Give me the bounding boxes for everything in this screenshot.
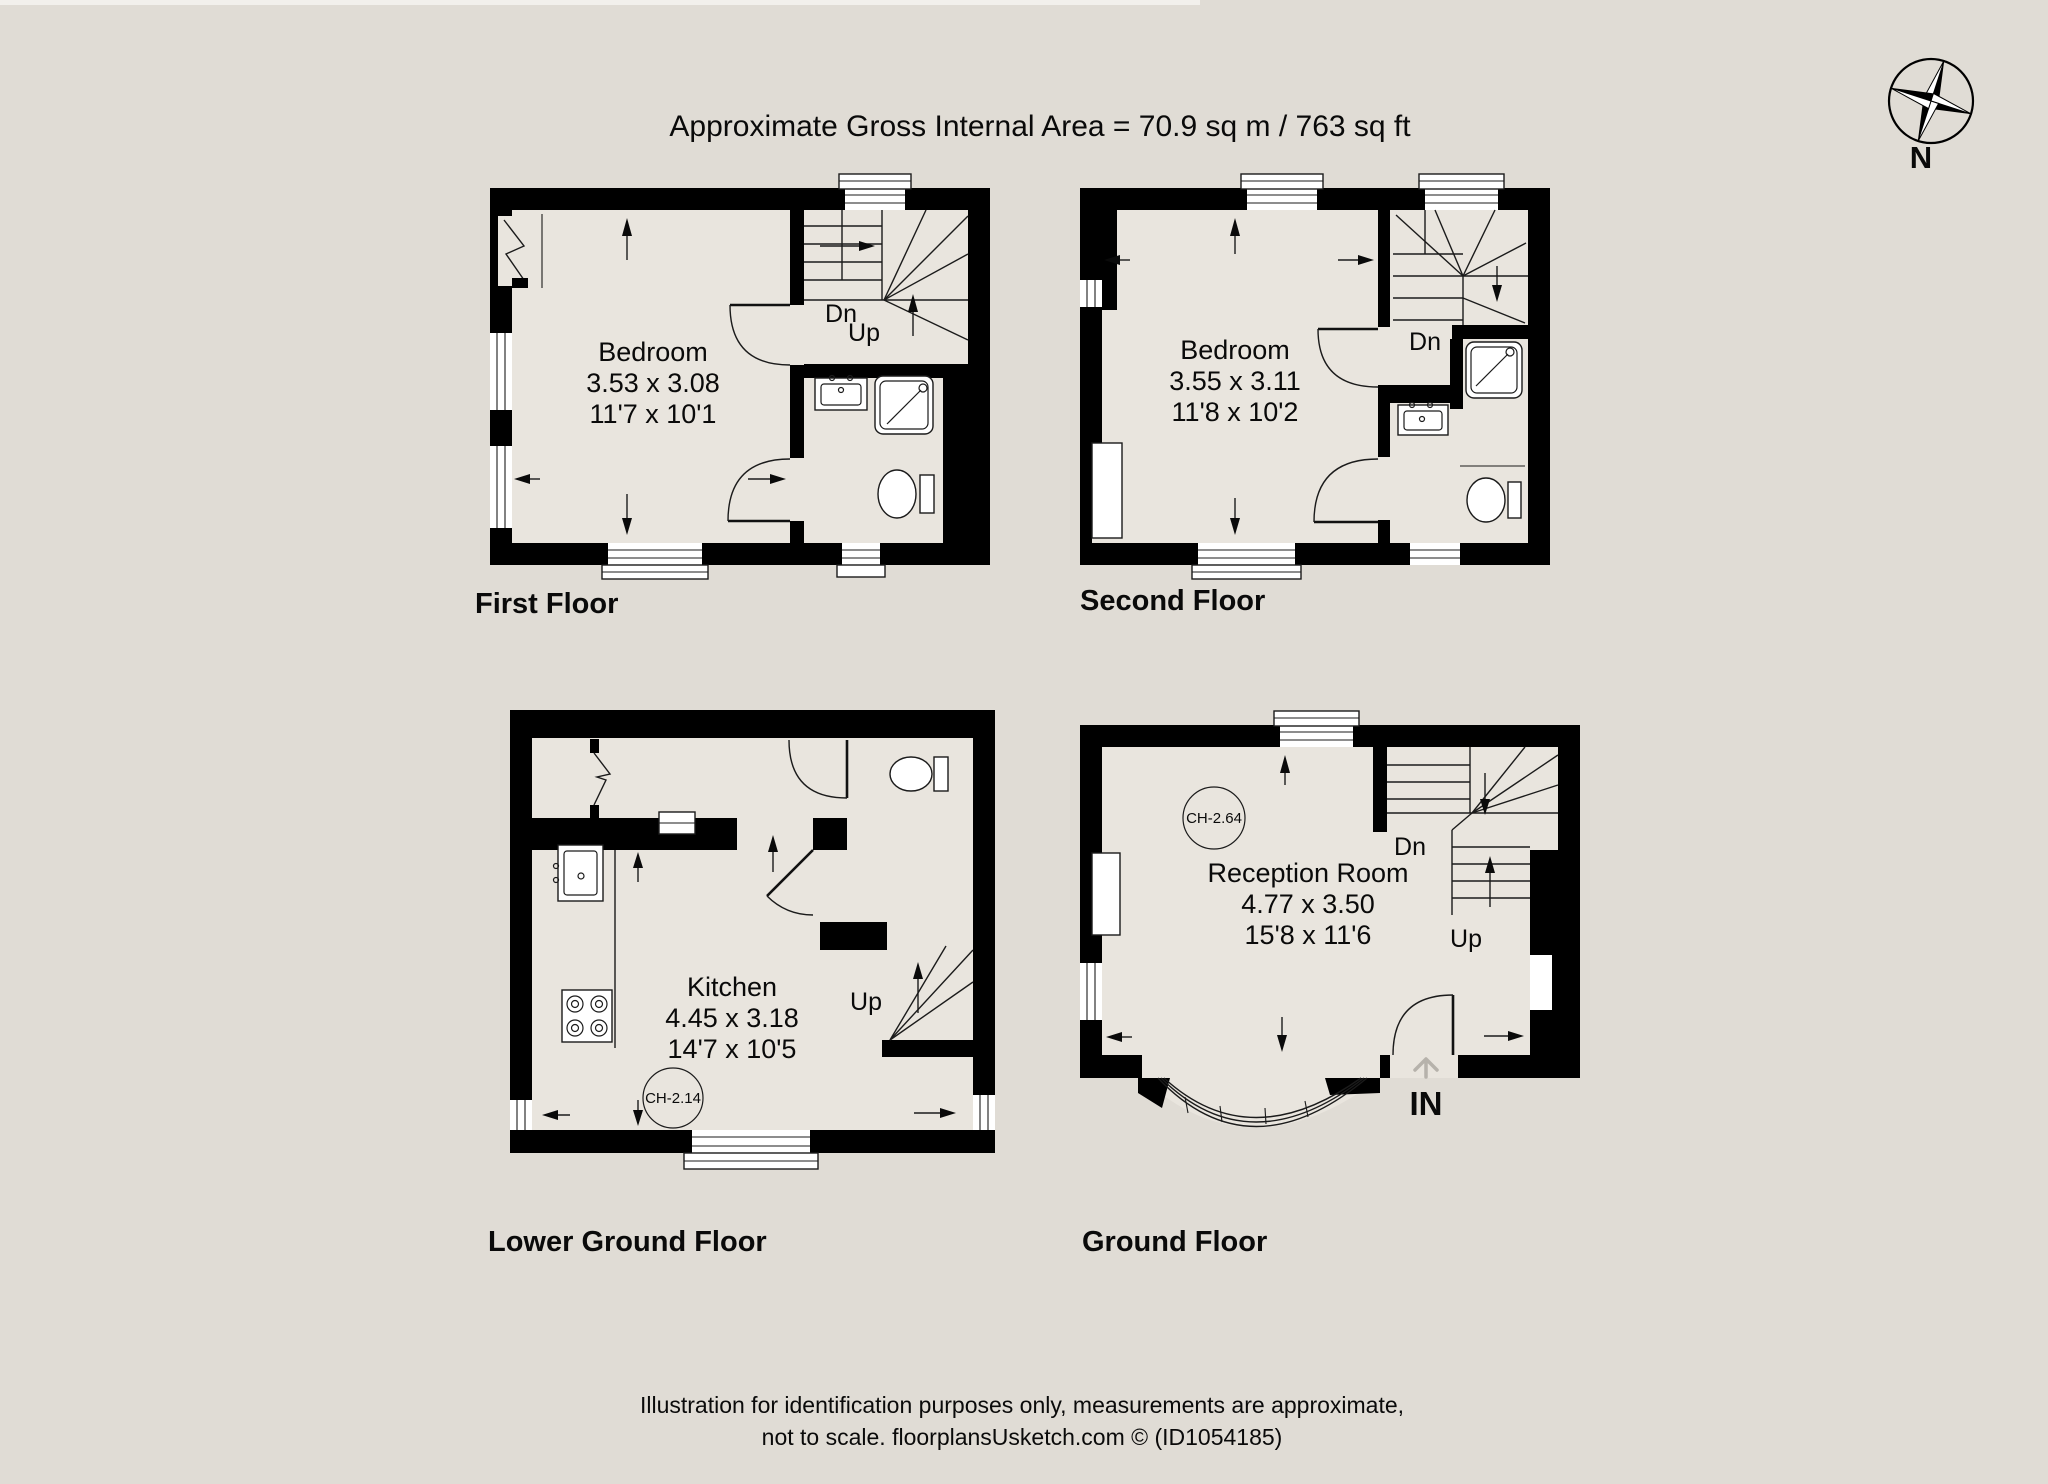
compass-north-label: N (1910, 140, 1932, 176)
second-floor-room-label: Bedroom 3.55 x 3.11 11'8 x 10'2 (1169, 335, 1301, 428)
second-floor-label: Second Floor (1080, 585, 1265, 618)
ground-floor-label: Ground Floor (1082, 1226, 1267, 1259)
top-strip (0, 0, 1200, 5)
room-size-metric: 3.55 x 3.11 (1169, 366, 1301, 397)
reception-room-label: Reception Room 4.77 x 3.50 15'8 x 11'6 (1207, 858, 1408, 951)
room-size-metric: 4.45 x 3.18 (665, 1003, 799, 1034)
sink-icon (554, 845, 604, 901)
lower-ground-floor-plan (510, 700, 995, 1175)
shower-icon (875, 376, 933, 434)
entrance-label: IN (1410, 1085, 1443, 1123)
footer-line-2: not to scale. floorplansUsketch.com © (I… (762, 1424, 1283, 1451)
first-floor-room-label: Bedroom 3.53 x 3.08 11'7 x 10'1 (586, 337, 720, 430)
first-floor-label: First Floor (475, 588, 618, 621)
toilet-icon (890, 757, 948, 791)
lower-ground-ceiling-height: CH-2.14 (645, 1090, 701, 1107)
kitchen-room-label: Kitchen 4.45 x 3.18 14'7 x 10'5 (665, 972, 799, 1065)
room-size-metric: 3.53 x 3.08 (586, 368, 720, 399)
ground-floor-stair-up-label: Up (1450, 925, 1482, 954)
lower-ground-stair-up-label: Up (850, 988, 882, 1017)
stove-icon (562, 990, 612, 1042)
room-name: Bedroom (586, 337, 720, 368)
second-floor-stair-down-label: Dn (1409, 328, 1441, 357)
room-size-metric: 4.77 x 3.50 (1207, 889, 1408, 920)
first-floor-closet (498, 214, 542, 288)
room-name: Bedroom (1169, 335, 1301, 366)
ground-floor-stair-down-label: Dn (1394, 833, 1426, 862)
lower-ground-floor-label: Lower Ground Floor (488, 1226, 767, 1259)
room-size-imperial: 11'7 x 10'1 (586, 399, 720, 430)
room-size-imperial: 11'8 x 10'2 (1169, 397, 1301, 428)
first-floor-stair-up-label: Up (848, 319, 880, 348)
sink-icon (1398, 403, 1448, 436)
second-floor-plan (1080, 168, 1550, 580)
room-size-imperial: 15'8 x 11'6 (1207, 920, 1408, 951)
toilet-icon (878, 470, 934, 518)
room-size-imperial: 14'7 x 10'5 (665, 1034, 799, 1065)
compass-star (1877, 47, 1985, 155)
compass-icon (1885, 55, 1977, 147)
shower-icon (1466, 342, 1522, 398)
footer-line-1: Illustration for identification purposes… (640, 1392, 1404, 1419)
sink-icon (815, 376, 867, 411)
room-name: Kitchen (665, 972, 799, 1003)
room-name: Reception Room (1207, 858, 1408, 889)
floorplan-page: Approximate Gross Internal Area = 70.9 s… (0, 0, 2048, 1484)
first-floor-plan (490, 168, 990, 580)
page-title: Approximate Gross Internal Area = 70.9 s… (669, 110, 1410, 144)
ground-ceiling-height: CH-2.64 (1186, 810, 1242, 827)
